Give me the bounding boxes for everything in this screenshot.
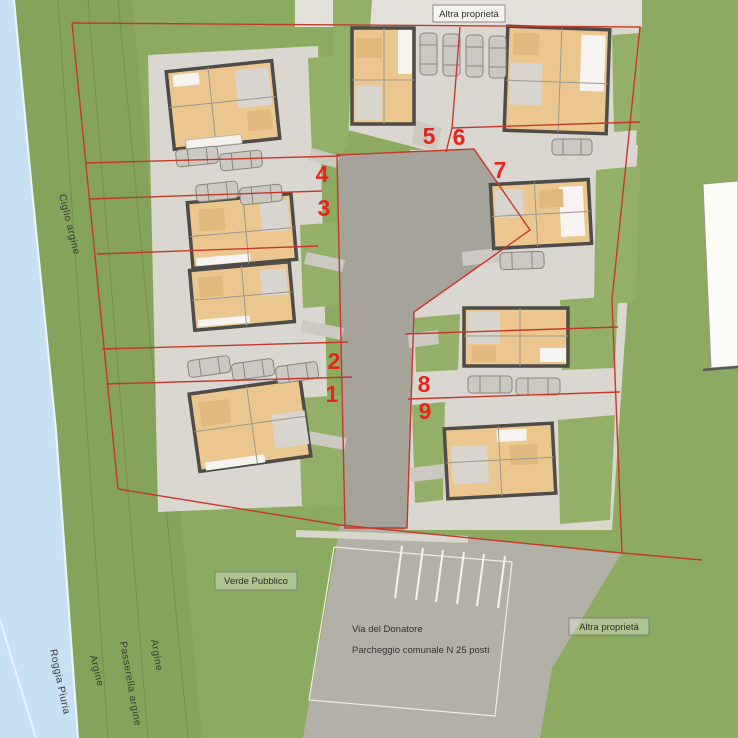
lot-number-5: 5	[423, 123, 436, 149]
street-name: Via del Donatore	[352, 624, 423, 635]
building-9	[444, 423, 556, 499]
lot-number-1: 1	[326, 381, 339, 407]
parking-caption: Parcheggio comunale N 25 posti	[352, 645, 489, 656]
car	[552, 139, 592, 155]
lot-number-6: 6	[453, 124, 466, 150]
lot-number-3: 3	[318, 195, 331, 221]
label-bottom-property-text: Altra proprietà	[579, 622, 639, 633]
car	[500, 251, 545, 270]
building-5	[352, 28, 414, 124]
label-bottom-property: Altra proprietà	[569, 618, 649, 635]
label-top-property: Altra proprietà	[433, 5, 505, 22]
car	[489, 36, 506, 78]
lot-number-4: 4	[316, 161, 329, 187]
site-plan-page: 1 2 3 4 5 6 7 8 9 Altra proprietà Verde …	[0, 0, 738, 738]
building-3	[190, 262, 295, 330]
car	[516, 378, 560, 395]
label-public-green-text: Verde Pubblico	[224, 576, 288, 587]
car	[466, 35, 483, 77]
lot-number-2: 2	[328, 348, 341, 374]
lot-number-8: 8	[418, 371, 431, 397]
building-7	[490, 179, 591, 248]
lot-number-9: 9	[419, 398, 432, 424]
building-6	[504, 26, 610, 133]
building-8	[464, 308, 568, 366]
label-top-property-text: Altra proprietà	[439, 9, 499, 20]
site-plan-drawing: 1 2 3 4 5 6 7 8 9 Altra proprietà Verde …	[0, 0, 738, 738]
lot-number-7: 7	[494, 157, 507, 183]
building-4	[189, 379, 311, 472]
building-1	[166, 61, 280, 151]
label-public-green: Verde Pubblico	[215, 572, 297, 590]
building-2	[187, 194, 296, 269]
car	[420, 33, 437, 75]
car	[468, 376, 512, 393]
